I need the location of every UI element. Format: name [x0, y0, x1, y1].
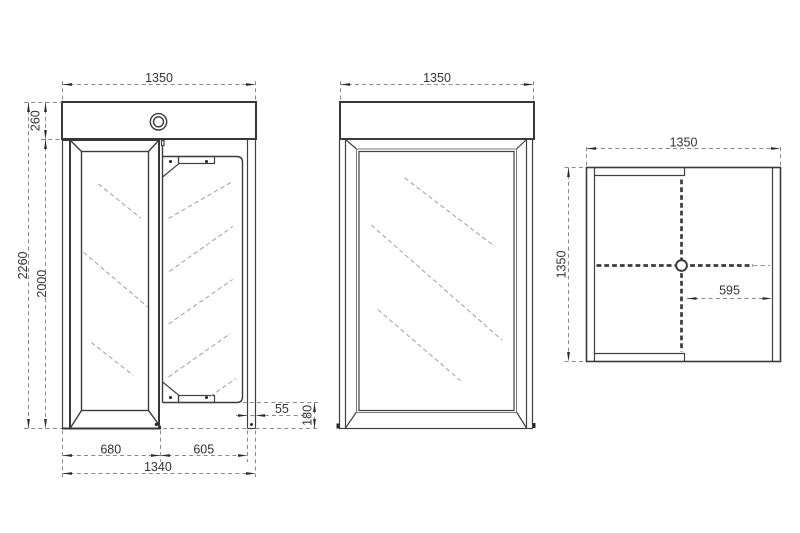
svg-text:605: 605 [193, 442, 214, 456]
svg-text:680: 680 [100, 442, 121, 456]
svg-text:1350: 1350 [554, 251, 568, 279]
svg-text:2000: 2000 [35, 270, 49, 298]
svg-text:1340: 1340 [144, 460, 172, 474]
svg-text:1350: 1350 [423, 71, 451, 85]
svg-text:55: 55 [275, 402, 289, 416]
svg-text:180: 180 [300, 405, 314, 426]
svg-text:2260: 2260 [16, 251, 30, 279]
svg-text:260: 260 [28, 110, 42, 131]
svg-text:595: 595 [719, 283, 740, 297]
svg-text:1350: 1350 [670, 135, 698, 149]
svg-text:1350: 1350 [145, 71, 173, 85]
